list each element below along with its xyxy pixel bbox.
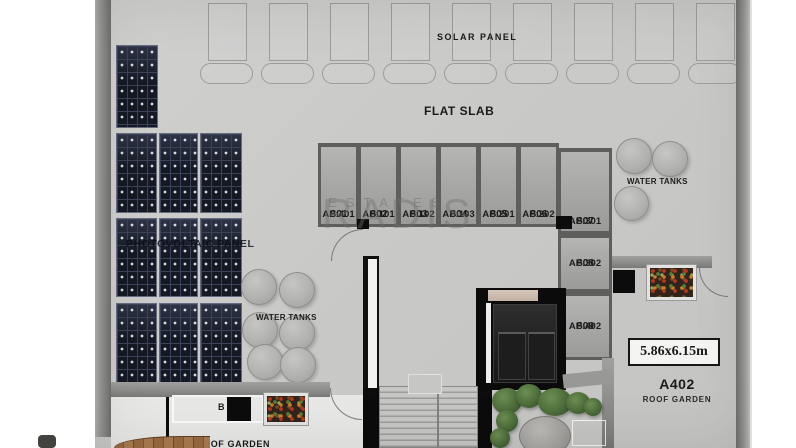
solar-collector xyxy=(505,63,558,84)
solar-collector xyxy=(383,63,436,84)
water-tanks-right-label: WATER TANKS xyxy=(627,177,688,186)
solar-panel-slot xyxy=(269,3,308,61)
plan-edge xyxy=(750,0,752,448)
planter-mosaic xyxy=(264,393,308,425)
garden-wall-line xyxy=(166,397,169,437)
pv-panel xyxy=(159,133,198,213)
elevator-door xyxy=(528,332,555,380)
wall-left xyxy=(95,0,111,437)
wall-right xyxy=(736,0,750,448)
planter-mosaic xyxy=(647,265,696,300)
solar-collector xyxy=(261,63,314,84)
railing-outline xyxy=(572,420,606,446)
storage-ap: AP:302 xyxy=(569,258,601,270)
pv-panel xyxy=(159,218,198,297)
water-tanks-left-label: WATER TANKS xyxy=(256,313,317,322)
storage-ap: AP:402 xyxy=(569,321,601,333)
unit-name-label: ROOF GARDEN xyxy=(634,395,720,404)
unit-code-label: A402 xyxy=(638,376,716,392)
elevator-door xyxy=(498,332,526,380)
flat-slab-label: FLAT SLAB xyxy=(424,104,494,118)
solar-panel-slot xyxy=(696,3,735,61)
bbq-label: B xyxy=(218,402,225,412)
pv-panel xyxy=(116,218,157,297)
center-wall-lower xyxy=(363,388,379,448)
stair-divider xyxy=(437,387,439,447)
storage-unit-s09: S09 AP:402 xyxy=(558,292,612,360)
water-tank xyxy=(616,138,652,174)
solar-panel-slot xyxy=(574,3,613,61)
water-tank xyxy=(247,344,283,380)
storage-unit-s08: S08 AP:302 xyxy=(558,234,612,292)
wall-stub xyxy=(556,216,572,229)
solar-panel-slot xyxy=(513,3,552,61)
pv-panel xyxy=(116,133,157,213)
elevator-beam xyxy=(488,290,538,301)
photovoltaic-label: PHOTOVOLTAIC PANEL xyxy=(126,238,230,251)
storage-ap: AP:201 xyxy=(482,209,514,221)
storage-ap: AP:301 xyxy=(569,216,601,228)
water-tank xyxy=(652,141,688,177)
solar-collector xyxy=(627,63,680,84)
solar-collector xyxy=(566,63,619,84)
storage-ap: AP:202 xyxy=(522,209,554,221)
dimension-label: 5.86x6.15m xyxy=(640,344,708,360)
pv-panel xyxy=(200,303,242,383)
plant xyxy=(584,398,602,416)
equipment-box xyxy=(613,270,635,293)
elevator-wall-gap xyxy=(486,303,491,383)
solar-panel-slot xyxy=(330,3,369,61)
deck-chair xyxy=(38,435,56,448)
center-wall xyxy=(363,256,379,388)
water-tank xyxy=(280,347,316,383)
pv-panel xyxy=(200,218,242,297)
solar-collector xyxy=(688,63,741,84)
watermark-line2: ESTATES xyxy=(322,195,448,210)
pv-panel xyxy=(159,303,198,383)
water-tank xyxy=(279,272,315,308)
skylight-outline xyxy=(408,374,442,394)
staircase xyxy=(379,386,478,448)
water-tank xyxy=(241,269,277,305)
solar-collector xyxy=(322,63,375,84)
plant xyxy=(490,428,510,448)
solar-panel-slot xyxy=(208,3,247,61)
dimension-box: 5.86x6.15m xyxy=(628,338,720,366)
pv-panel xyxy=(200,133,242,213)
solar-panel-slot xyxy=(635,3,674,61)
solar-panel-slot xyxy=(391,3,430,61)
storage-unit-s06: S06 AP:202 xyxy=(518,143,559,227)
roof-plan: PHOTOVOLTAIC PANEL SOLAR PANEL FLAT SLAB… xyxy=(0,0,796,448)
garden-table xyxy=(519,416,571,448)
bbq-box xyxy=(227,397,251,421)
pv-panel xyxy=(116,45,158,128)
water-tank xyxy=(614,186,649,221)
pv-panel xyxy=(116,303,157,383)
solar-collector xyxy=(444,63,497,84)
storage-unit-s05: S05 AP:201 xyxy=(478,143,519,227)
solar-panel-label: SOLAR PANEL xyxy=(437,32,517,42)
solar-collector xyxy=(200,63,253,84)
